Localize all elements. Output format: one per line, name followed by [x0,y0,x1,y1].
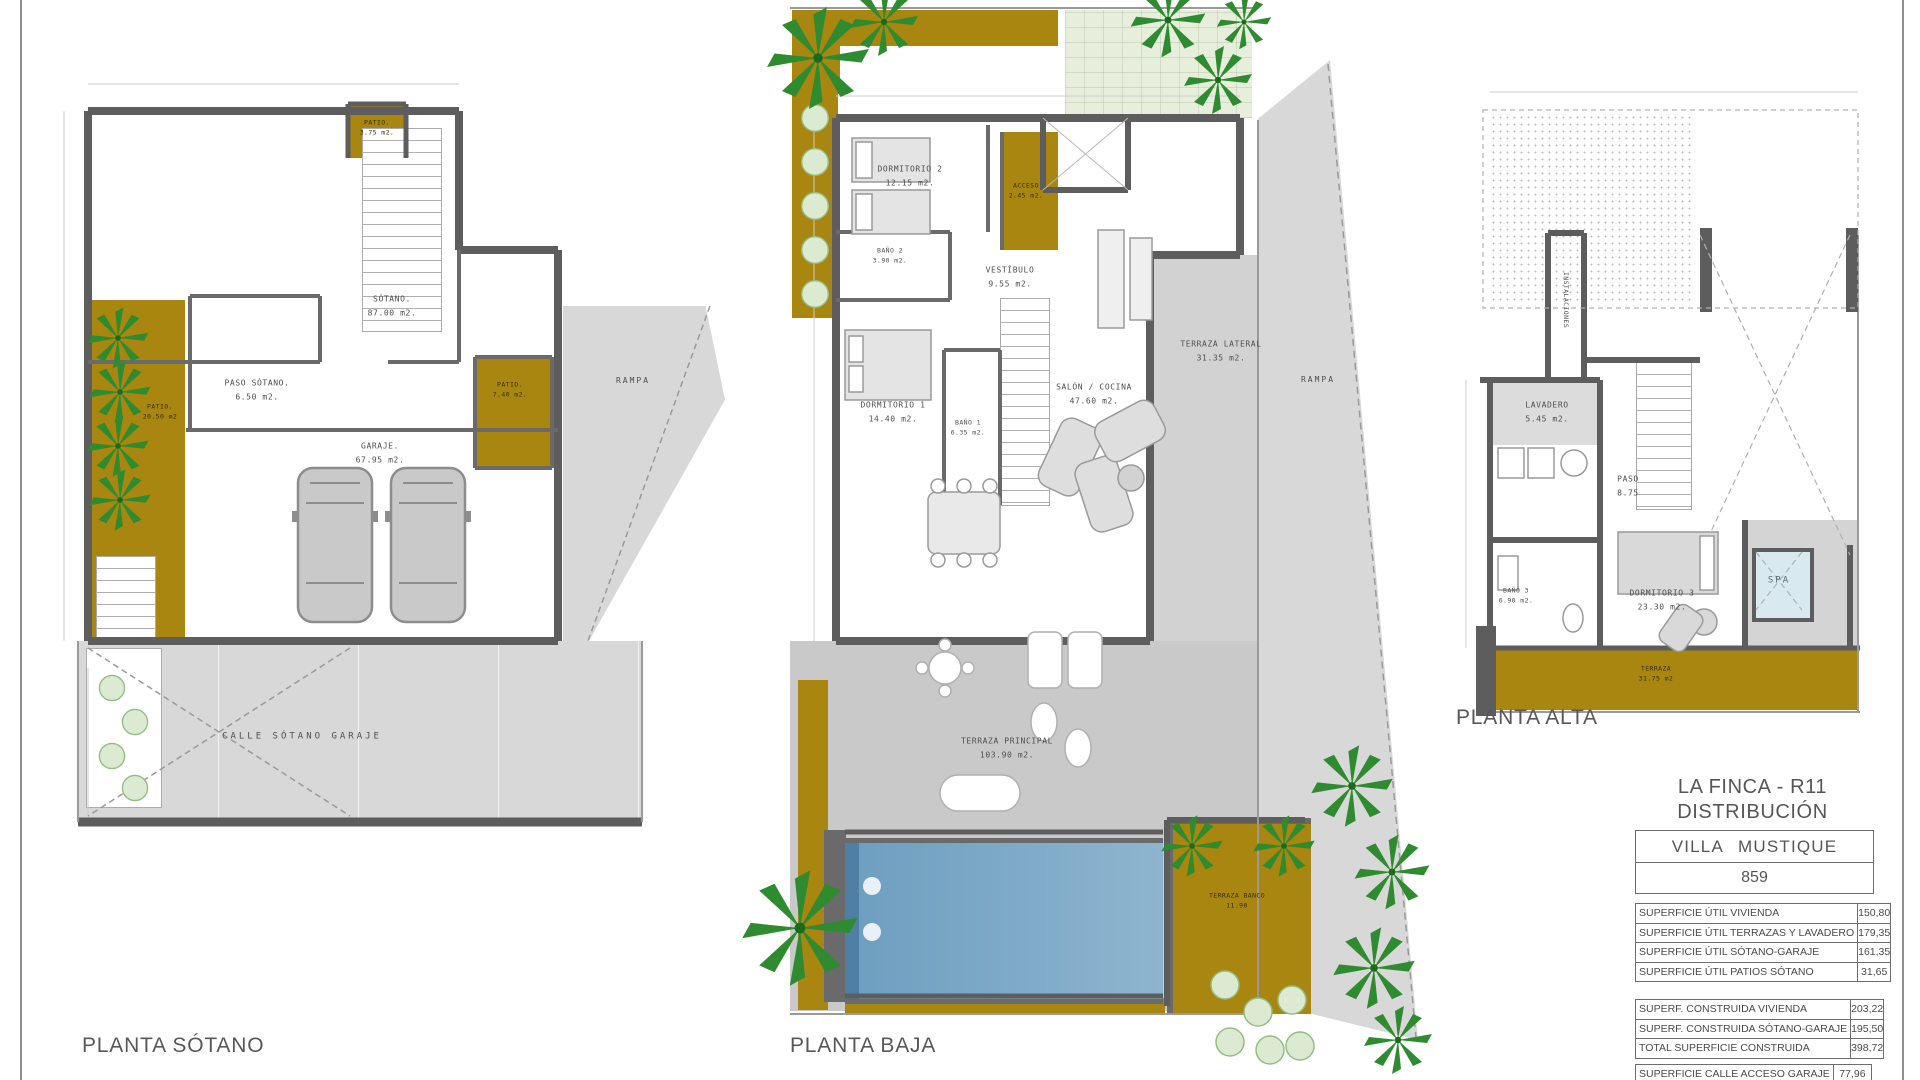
room-label-rampa-sotano: RAMPA [616,377,650,385]
room-label-sotano: SÓTANO. 87.00 m2. [368,292,417,319]
baja-terraza-lateral-area [1150,255,1258,641]
room-label-paso-sotano: PASO SÓTANO. 6.50 m2. [225,376,290,403]
room-label-patio-top: PATIO. 3.75 m2. [360,118,395,139]
room-label-paso-alta: PASO 8.75 [1617,472,1639,499]
built-areas-table: SUPERF. CONSTRUIDA VIVIENDA 203,22 SUPER… [1635,999,1884,1059]
table-row: SUPERFICIE CALLE ACCESO GARAJE 77,96 [1636,1065,1872,1080]
plot-number: 859 [1636,862,1873,892]
sheet-border-right [1902,0,1904,1080]
sotano-patio-stairs [96,556,156,643]
baja-stairs [1000,298,1050,506]
room-label-bano3: BAÑO 3 6.90 m2. [1499,586,1534,607]
room-label-salon: SALÓN / COCINA 47.60 m2. [1056,380,1132,407]
room-label-rampa-baja: RAMPA [1301,376,1335,384]
room-label-acceso: ACCESO 2.45 m2. [1009,181,1044,202]
room-label-dormitorio3: DORMITORIO 3 23.30 m2. [1630,586,1695,613]
table-row: SUPERFICIE ÚTIL SÓTANO-GARAJE 161,35 [1636,943,1891,963]
room-label-garaje: GARAJE. 67.95 m2. [356,439,405,466]
useful-areas-table: SUPERFICIE ÚTIL VIVIENDA 150,80 SUPERFIC… [1635,903,1891,982]
sotano-rampa-area [563,306,725,641]
room-label-bano2: BAÑO 2 3.90 m2. [873,246,908,267]
room-label-terraza-alta: TERRAZA 31.75 m2 [1639,664,1674,685]
plan-title-baja: PLANTA BAJA [790,1034,936,1058]
room-label-terraza-banco: TERRAZA BANCO 11.90 [1209,891,1265,912]
room-label-calle: CALLE SÓTANO GARAJE [222,733,382,742]
room-label-instalaciones: INSTALACIONES [1561,272,1571,328]
table-row: SUPERFICIE ÚTIL TERRAZAS Y LAVADERO 179,… [1636,923,1891,943]
drawing-title: DISTRIBUCIÓN [1630,801,1875,824]
room-label-spa: SPA [1768,577,1790,586]
room-label-terraza-lateral: TERRAZA LATERAL 31.35 m2. [1180,337,1261,364]
plan-title-alta: PLANTA ALTA [1456,706,1598,730]
baja-planter-band [792,94,838,318]
room-label-dormitorio1: DORMITORIO 1 14.40 m2. [861,398,926,425]
sheet-border-left [20,0,22,1080]
room-label-bano1: BAÑO 1 6.35 m2. [951,418,986,439]
architectural-sheet: SÓTANO. 87.00 m2. PASO SÓTANO. 6.50 m2. … [0,0,1920,1080]
room-label-vestibulo: VESTÍBULO 9.55 m2. [986,263,1035,290]
baja-lawn [1065,10,1252,118]
alta-terraza-area [1490,648,1858,710]
table-row: SUPERF. CONSTRUIDA VIVIENDA 203,22 [1636,1000,1884,1020]
alta-gravel-roof [1490,114,1695,306]
plan-title-sotano: PLANTA SÓTANO [82,1034,264,1058]
alta-stairs [1636,362,1692,510]
sotano-planting-bed [86,648,162,808]
table-row: SUPERF. CONSTRUIDA SÓTANO-GARAJE 195,50 [1636,1019,1884,1039]
villa-box: VILLA MUSTIQUE 859 [1635,830,1874,894]
table-row: TOTAL SUPERFICIE CONSTRUIDA 398,72 [1636,1039,1884,1059]
table-row: SUPERFICIE ÚTIL PATIOS SÓTANO 31,65 [1636,962,1891,982]
villa-name: VILLA MUSTIQUE [1636,831,1873,862]
baja-ochre-corner [792,10,840,94]
table-row: SUPERFICIE ÚTIL VIVIENDA 150,80 [1636,904,1891,924]
sotano-patio-right [475,357,552,468]
baja-terraza-banco-area [1167,818,1311,1014]
room-label-dormitorio2: DORMITORIO 2 12.15 m2. [878,162,943,189]
room-label-terraza-principal: TERRAZA PRINCIPAL 103.90 m2. [961,734,1053,761]
project-title: LA FINCA - R11 [1630,776,1875,799]
access-areas-table: SUPERFICIE CALLE ACCESO GARAJE 77,96 [1635,1064,1872,1080]
room-label-patio-left: PATIO. 20.50 m2 [143,402,178,423]
room-label-patio-right: PATIO. 7.40 m2. [493,380,528,401]
baja-pool [845,838,1163,1004]
baja-pool-wall [824,830,846,1002]
room-label-lavadero: LAVADERO 5.45 m2. [1525,398,1568,425]
